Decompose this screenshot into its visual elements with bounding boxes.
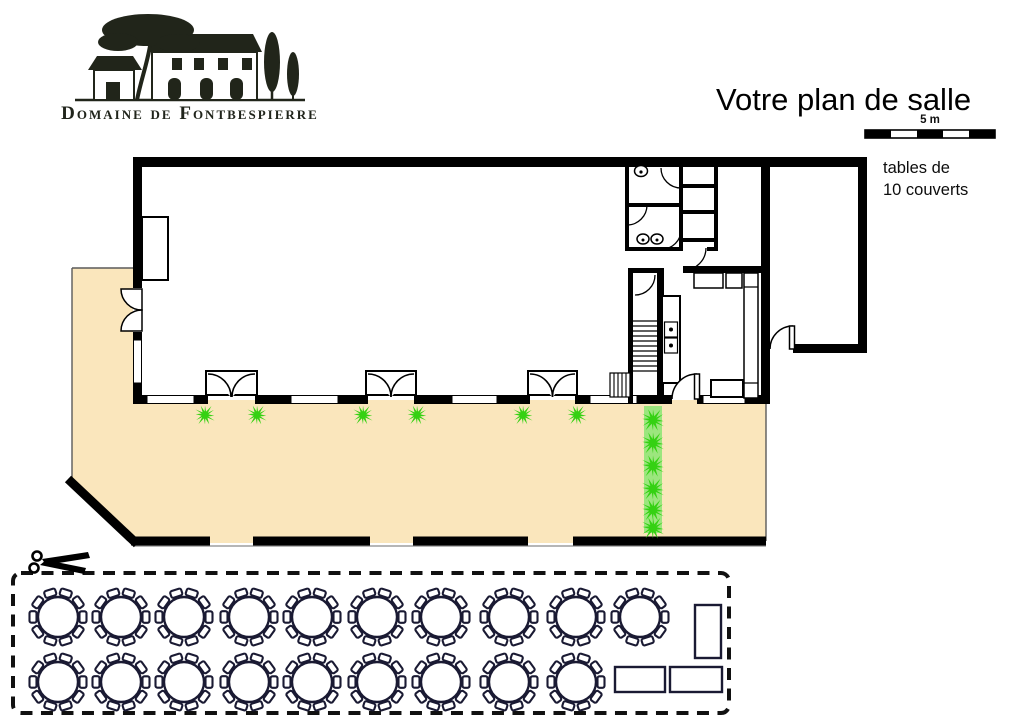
round-table (481, 653, 538, 711)
round-table (612, 588, 669, 646)
chair (156, 611, 163, 623)
chair (334, 611, 341, 623)
chair (206, 676, 213, 688)
cypress-icon (264, 32, 280, 92)
page-title: Votre plan de salle (716, 82, 1016, 118)
french-door (366, 371, 416, 397)
chair (93, 676, 100, 688)
table-top (421, 597, 461, 637)
chair (284, 676, 291, 688)
chair (531, 676, 538, 688)
chair (531, 611, 538, 623)
round-table (413, 588, 470, 646)
chair (93, 611, 100, 623)
rect-table (695, 605, 721, 658)
kitchen-east-counter (744, 273, 758, 398)
table-top (229, 597, 269, 637)
round-table (156, 588, 213, 646)
chair (206, 611, 213, 623)
round-table (30, 588, 87, 646)
chair (271, 611, 278, 623)
scissors-icon (30, 552, 91, 575)
chair (143, 611, 150, 623)
round-table (221, 653, 278, 711)
chair (221, 676, 228, 688)
chair (143, 676, 150, 688)
table-top (101, 597, 141, 637)
chair (548, 611, 555, 623)
chair (463, 676, 470, 688)
chair (481, 676, 488, 688)
logo-wordmark: Domaine de Fontbespierre (25, 103, 355, 125)
chair (413, 676, 420, 688)
chair (80, 676, 87, 688)
tables-capacity-note-line1: tables de (883, 158, 968, 180)
kitchen-island (662, 296, 680, 383)
kitchen-bench (711, 380, 743, 397)
table-top (101, 662, 141, 702)
table-top (292, 662, 332, 702)
chair (30, 676, 37, 688)
round-table (284, 653, 341, 711)
rect-table (670, 667, 722, 692)
chair (662, 611, 669, 623)
scale-bar-label: 5 m (865, 114, 995, 126)
table-top (164, 597, 204, 637)
table-top (620, 597, 660, 637)
rect-table (615, 667, 665, 692)
round-table (221, 588, 278, 646)
round-table (93, 653, 150, 711)
kitchen-north-wall (683, 266, 761, 273)
table-top (556, 662, 596, 702)
tables-area (30, 588, 723, 711)
round-table (156, 653, 213, 711)
chair (221, 611, 228, 623)
logo-illustration (75, 14, 305, 100)
round-table (284, 588, 341, 646)
chair (612, 611, 619, 623)
round-table (548, 653, 605, 711)
chair (598, 676, 605, 688)
chair (413, 611, 420, 623)
table-top (489, 597, 529, 637)
table-top (421, 662, 461, 702)
scale-bar (865, 130, 995, 138)
chair (80, 611, 87, 623)
chair (30, 611, 37, 623)
round-table (481, 588, 538, 646)
table-top (489, 662, 529, 702)
table-top (229, 662, 269, 702)
wall-wing-bottom (793, 344, 867, 353)
table-top (292, 597, 332, 637)
chair (463, 611, 470, 623)
chair (481, 611, 488, 623)
french-door (206, 371, 257, 397)
round-table (30, 653, 87, 711)
chair (156, 676, 163, 688)
chair (399, 611, 406, 623)
round-table (93, 588, 150, 646)
chair (271, 676, 278, 688)
wall-top (133, 157, 867, 167)
chair (548, 676, 555, 688)
tables-capacity-note: tables de 10 couverts (883, 158, 968, 202)
chair (349, 676, 356, 688)
pine-tree-icon (137, 46, 150, 100)
small-steps (610, 373, 630, 397)
chair (399, 676, 406, 688)
round-table (349, 588, 406, 646)
table-top (38, 597, 78, 637)
page: { "header": { "logo_text": "Domaine de F… (0, 0, 1024, 724)
chair (334, 676, 341, 688)
table-top (38, 662, 78, 702)
round-table (413, 653, 470, 711)
chair (598, 611, 605, 623)
building (121, 157, 867, 404)
french-door (528, 371, 577, 397)
wall-right-main (761, 157, 770, 404)
table-top (556, 597, 596, 637)
hall-furniture (142, 217, 168, 280)
kitchen-counter (694, 273, 723, 288)
round-table (349, 653, 406, 711)
round-table (548, 588, 605, 646)
wall-right-wing (858, 157, 867, 353)
wall-left (133, 157, 142, 288)
table-top (357, 597, 397, 637)
tables-capacity-note-line2: 10 couverts (883, 180, 968, 202)
chair (284, 611, 291, 623)
table-top (357, 662, 397, 702)
table-top (164, 662, 204, 702)
window-left (134, 340, 142, 383)
chair (349, 611, 356, 623)
